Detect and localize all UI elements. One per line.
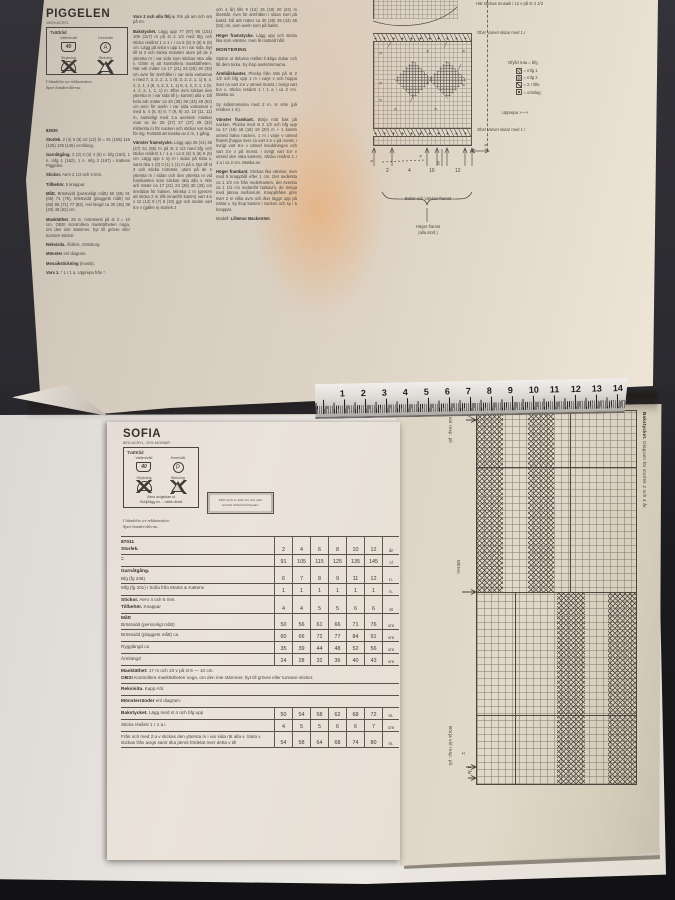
wash-label: Vattentvätt (136, 456, 153, 460)
size-value: 6 (346, 720, 364, 731)
paragraph-lead: Vänster framstycke. (133, 140, 173, 145)
wash-40-icon: 40 (136, 462, 151, 472)
pattern-band (608, 592, 637, 785)
rtills-symbol-icon (516, 82, 522, 88)
paragraph: Varv 2 och alla följ v. Rm på am och am … (133, 14, 212, 25)
x-mark: × (419, 155, 422, 161)
paragraph: Höger framstycke. Lägg upp och sticka li… (216, 33, 297, 44)
unit-cell: år (382, 537, 399, 554)
label-bold: Stickor. (121, 598, 138, 603)
ruler-number: 8 (487, 386, 492, 396)
legend-label: = mfg 1 (524, 68, 538, 73)
size-value: 84 (346, 630, 364, 641)
size-value: 71 (346, 614, 364, 630)
size-value: 4 (274, 596, 292, 613)
pattern-band (557, 592, 585, 785)
label-line: Bröstvidd (plaggets mått) ca (121, 632, 272, 638)
page-title: PIGGELEN (46, 8, 132, 20)
unit-cell: cm (382, 630, 399, 641)
copyright-line: särskilt tillstånd förbjudes. (222, 503, 260, 508)
paragraph: Ärmhålskanter. Plocka från räts på st 2 … (216, 71, 297, 98)
row-label: Bakstycket. Lägg med st 4 och bfg upp (121, 708, 274, 719)
paragraph: Garnåtgång. 2 (3) 3 (4) 4 (5) n. bfg (15… (46, 152, 130, 168)
size-value: 35 (274, 642, 292, 653)
label-line: Rekvisita. Kapp Ahl. (121, 686, 397, 693)
ruler-number: 3 (382, 388, 387, 398)
paragraph: Mått. Bröstvidd (personligt mått) 50 (56… (46, 191, 130, 213)
size-value: 135 (346, 555, 364, 566)
start-mark: 4 år (465, 766, 472, 775)
row-end-note: Obs! Varvet slutar med 1 r (477, 30, 526, 35)
row-label: Bröstvidd (plaggets mått) ca (121, 630, 274, 641)
legend-label: = mfg 2 (524, 75, 538, 80)
size-value: 125 (328, 555, 346, 566)
sofia-diagram-sheet: Bakstycket. Diagram för storlek 2 och 4 … (396, 404, 663, 866)
paragraph: Varv 1. * 1 r 1 a. Upprepa från *. (46, 270, 130, 275)
photo-scene: Bakstycket. Diagram för storlek 2 och 4 … (0, 0, 675, 900)
table-row: MåttBröstvidd (personligt mått)505661667… (121, 614, 399, 631)
legend-item: = mfg 1 (516, 68, 541, 74)
paragraph-lead: Stickor. (46, 172, 61, 177)
grid-line (476, 467, 637, 468)
ruler: 1234567891011121314 (315, 378, 632, 419)
paragraph-lead: Bakstycket. (133, 29, 156, 34)
paragraph-lead: Mönster (46, 251, 62, 256)
label-line: Sticka resårst 1 r 1 a i (121, 722, 272, 728)
row-label: MåttBröstvidd (personligt mått) (121, 614, 274, 630)
start-label: Börja vid resp. pil. (446, 726, 453, 800)
label-line: Tillbehör. Knappar (121, 604, 272, 611)
ruler-number: 12 (571, 384, 581, 394)
size-value: 6 (346, 596, 364, 613)
unit-cell: st (382, 596, 399, 613)
label-line: Stickor. Aero 4 och 5 mm. (121, 597, 272, 604)
cross-icon (170, 480, 187, 494)
label-line: Rygglängd ca (121, 644, 272, 650)
grid-line (476, 592, 637, 593)
size-value: 12 (364, 537, 382, 554)
size-value: 5 (310, 720, 328, 731)
table-row: =91105115125135145cl (121, 555, 399, 567)
x-mark: × (484, 144, 487, 150)
paragraph-lead: Rekvisita. (46, 242, 66, 247)
paragraph: och 4 år) tills 9 (12) 15 (18) 20 (22) m… (216, 7, 297, 29)
size-mark: 4 (408, 168, 411, 174)
label-line: Bröstvidd (personligt mått) (121, 622, 272, 628)
label-line: = (121, 556, 272, 563)
size-value: 1 (310, 584, 328, 595)
grid-line (515, 592, 516, 785)
grid-line (476, 715, 637, 716)
size-value: 36 (328, 654, 346, 665)
paragraph-lead: Mosaikstickning (46, 261, 79, 266)
size-value: 6 (274, 567, 292, 583)
wash-label: Vattentvätt (60, 36, 77, 40)
size-table: 87011Storlek.24681012år=9110511512513514… (121, 536, 399, 748)
x-motif: × (379, 82, 382, 88)
paragraph-lead: Lillemor Bäckström (231, 216, 270, 221)
section-heading: MONTERING (216, 47, 297, 53)
chart-title: Bakstycket. Diagram för storlek 2 och 4 … (640, 412, 647, 552)
instruction-column-2: Varv 2 och alla följ v. Rm på am och am … (133, 14, 212, 214)
slash-motif: ╱ (458, 66, 461, 72)
ruler-number: 9 (508, 385, 513, 395)
right-front-sizes: (alla storl.) (390, 230, 466, 235)
size-value: 10 (346, 537, 364, 554)
slash-motif: ╱ (388, 43, 391, 49)
size-value: 44 (310, 642, 328, 653)
unit-cell: cl (382, 555, 399, 566)
slash-motif: ╱ (410, 98, 413, 104)
x-motif: × (462, 50, 465, 56)
paragraph: Höger framkant. Stickas lika vänster, me… (216, 169, 297, 212)
size-value: 11 (346, 567, 364, 583)
row-label: Från och med 2:a v stickas den yttersta … (121, 732, 274, 746)
care-note-line: Skölj/lägg ev. – häfta direkt (127, 500, 195, 505)
legend-label: = 2 r tills. (524, 82, 541, 87)
size-value: 6 (310, 537, 328, 554)
label-line: Bfg (fg 238) (121, 576, 272, 582)
size-value: 24 (274, 654, 292, 665)
paragraph-lead: Storlek. (46, 137, 61, 142)
size-value: 105 (292, 555, 310, 566)
label-line: Storlek. (121, 546, 272, 553)
size-value: 54 (274, 732, 292, 746)
row-label: Mönsterränder enl diagram. (121, 696, 399, 707)
ruler-number: 13 (592, 383, 602, 393)
ruler-number: 7 (466, 386, 471, 396)
dryclean-label: Kemtvätt (98, 36, 112, 40)
wash-temp: 40 (141, 464, 147, 470)
label-line: Garnåtgång. (121, 568, 272, 575)
unit-cell: n. (382, 584, 399, 595)
size-value: 62 (328, 708, 346, 719)
x-motif: × (426, 50, 429, 56)
label-bold: Mått (121, 616, 131, 621)
ruler-number: 10 (529, 385, 539, 395)
care-symbols-box: Tvättråd Vattentvätt 40 Kemtvätt A Stryk… (46, 27, 128, 75)
x-mark: × (370, 160, 373, 166)
mosaic-note: Här stickas mosaik i 12 v på st 2 1/2 (476, 1, 543, 6)
size-value: 76 (364, 614, 382, 630)
size-value: 1 (364, 584, 382, 595)
size-mark: 2 (386, 168, 389, 174)
label-bold: OBS! (121, 676, 133, 681)
label-bold: 87011 (121, 540, 134, 545)
label-line: Bakstycket. Lägg med st 4 och bfg upp (121, 710, 272, 717)
row-label: Stickor. Aero 4 och 5 mm.Tillbehör. Knap… (121, 596, 274, 613)
omslag-symbol-icon (516, 89, 522, 95)
dryclean-label: Kemtvätt (171, 456, 185, 460)
size-mark: 10 (429, 168, 435, 174)
table-row: Stickor. Aero 4 och 5 mm.Tillbehör. Knap… (121, 596, 399, 614)
paragraph-lead: 83030 (46, 128, 58, 133)
ruler-number: 4 (403, 387, 408, 397)
unit-cell: m. (382, 708, 399, 719)
unit-cell: cm (382, 720, 399, 731)
label-line: 87011 (121, 539, 272, 546)
table-row: Bakstycket. Lägg med st 4 och bfg upp505… (121, 708, 399, 720)
size-value: 8 (328, 537, 346, 554)
reklamation-note: I händelse av reklamation: Spar banderol… (123, 518, 170, 531)
knitting-grid-top (373, 0, 458, 19)
chart-legend: = mfg 1= mfg 2= 2 r tills.= omslag (516, 68, 541, 96)
size-value: 1 (292, 584, 310, 595)
grid-line (570, 410, 571, 592)
label-line: Mfg (fg 201) i Sofia från Marks & Katten… (121, 585, 272, 591)
mfg2-symbol-icon (516, 75, 522, 81)
row-label: Rygglängd ca (121, 642, 274, 653)
size-value: 54 (292, 708, 310, 719)
size-value: 52 (346, 642, 364, 653)
size-value: 68 (328, 732, 346, 746)
label-bold: Mönsterränder (121, 699, 155, 704)
reklamation-line: Spar banderollerna. (123, 524, 170, 530)
label-bold: Tillbehör. (121, 605, 142, 610)
cross-icon (135, 480, 153, 493)
table-row: Från och med 2:a v stickas den yttersta … (121, 732, 399, 747)
size-mark: 12 (455, 168, 461, 174)
paragraph-lead: Ärmhålskanter. (216, 71, 246, 76)
size-value: 4 (292, 537, 310, 554)
x-motif: × (394, 108, 397, 114)
label-line: Masktäthet: 17 m och 23 v på st 5 — 10 c… (121, 668, 397, 675)
size-value: 66 (292, 630, 310, 641)
diamond-motif (394, 60, 432, 98)
size-value: 58 (292, 732, 310, 746)
wash-40-icon: 40 (61, 42, 76, 52)
paragraph-lead: Tillbehör. (46, 182, 65, 187)
size-value: 1 (346, 584, 364, 595)
piggelen-sheet: PIGGELEN 100% ACRYL Tvättråd Vattentvätt… (0, 0, 675, 418)
size-value: 77 (328, 630, 346, 641)
row-label: Rekvisita. Kapp Ahl. (121, 684, 399, 695)
dryclean-icon: A (100, 42, 111, 53)
instruction-column-3: och 4 år) tills 9 (12) 15 (18) 20 (22) m… (216, 7, 297, 225)
size-value: 1 (274, 584, 292, 595)
paragraph-lead: Garnåtgång. (46, 152, 71, 157)
x-motif: × (379, 52, 382, 58)
size-value: 5 (292, 720, 310, 731)
label-bold: Rekvisita. (121, 687, 143, 692)
table-row: Mönsterränder enl diagram. (121, 696, 399, 708)
fiber-content: 100% ACRYL (46, 21, 132, 25)
paragraph: Sy sidsömmarna med 2 m. st söm (på resår… (216, 102, 297, 113)
paragraph: Spänn ut delarna mellan fuktiga dukar oc… (216, 56, 297, 67)
size-value: 4 (292, 596, 310, 613)
legend-title: Ofylld ruta = bfg (508, 60, 538, 65)
sofia-banderoll: SOFIA 80% ACRYL, 20% MOHAIR Tvättråd Vat… (107, 422, 400, 860)
label-bold: Bakstycket. (121, 711, 148, 716)
ruler-number: 1 (340, 388, 345, 398)
paragraph: Modell: Lillemor Bäckström (216, 216, 297, 221)
row-label: Sticka resårst 1 r 1 a i (121, 720, 274, 731)
legend-item: = mfg 2 (516, 75, 541, 81)
reklamation-note: I händelse av reklamation: Spar banderol… (46, 79, 132, 92)
size-value: 7 (292, 567, 310, 583)
x-motif: × (462, 84, 465, 90)
chart-subtitle: Diagram för storlek 2 och 4 år. (642, 441, 647, 509)
mfg1-symbol-icon (516, 68, 522, 74)
no-iron-icon (137, 481, 152, 491)
legend-label: = omslag (524, 90, 541, 95)
x-motif: × (434, 108, 437, 114)
paragraph-lead: Masktäthet. (46, 217, 69, 222)
paragraph-lead: Höger framkant. (216, 169, 248, 174)
size-value: 64 (310, 732, 328, 746)
dryclean-letter: P (176, 465, 180, 471)
size-value: 43 (364, 654, 382, 665)
paragraph: Rekvisita. Åhléns, Göteborg. (46, 242, 130, 247)
size-value: 39 (292, 642, 310, 653)
size-value: 12 (364, 567, 382, 583)
paragraph-lead: Mått. (46, 191, 56, 196)
paragraph: Stickor. Aero 2 1/2 och 3 mm. (46, 172, 130, 177)
size-value: 68 (346, 708, 364, 719)
table-row: Sticka resårst 1 r 1 a i455667cm (121, 720, 399, 732)
row-label: 87011Storlek. (121, 537, 274, 554)
label-line: Mönsterränder enl diagram. (121, 698, 397, 705)
label-line: Ärmlängd (121, 656, 272, 662)
paragraph: Storlek. 2 (4) 6 (8) 10 (12) år = 91 (10… (46, 137, 130, 148)
size-value: 1 (328, 584, 346, 595)
size-mark: 6 (437, 161, 440, 167)
cross-icon (60, 60, 78, 73)
care-header: Tvättråd (50, 30, 124, 35)
size-value: 60 (274, 630, 292, 641)
size-value: 50 (274, 614, 292, 630)
label-bold: Garnåtgång. (121, 569, 149, 574)
care-header: Tvättråd (127, 450, 195, 455)
size-value: 80 (364, 732, 382, 746)
table-row: Mfg (fg 201) i Sofia från Marks & Katten… (121, 584, 399, 596)
size-value: 6 (328, 720, 346, 731)
chart-title-bold: Bakstycket. (642, 412, 647, 440)
copyright-box: Eftertryck av bild och text utan särskil… (207, 492, 274, 514)
label-line: Från och med 2:a v stickas den yttersta … (121, 734, 272, 746)
paragraph-lead: Höger framstycke. (216, 33, 254, 38)
ruler-number: 2 (361, 388, 366, 398)
size-value: 58 (310, 708, 328, 719)
size-value: 66 (328, 614, 346, 630)
start-mark: 2 (459, 752, 466, 755)
slash-motif: ╱ (444, 43, 447, 49)
label-line: OBS! Kontrollera masktätheten noga, om d… (121, 675, 397, 682)
unit-cell: cm (382, 654, 399, 665)
knitting-grid-bottom (373, 137, 472, 146)
wash-temp: 40 (66, 44, 72, 50)
reklamation-line: Spar banderollerna. (46, 85, 132, 91)
size-value: 74 (346, 732, 364, 746)
paragraph: 83030 (46, 128, 130, 133)
row-label: = (121, 555, 274, 566)
size-value: 91 (364, 630, 382, 641)
size-value: 50 (274, 708, 292, 719)
ruler-number: 14 (613, 383, 623, 393)
size-value: 72 (310, 630, 328, 641)
paragraph: Mönster enl diagram. (46, 251, 130, 256)
size-value: 32 (310, 654, 328, 665)
size-value: 115 (310, 555, 328, 566)
size-value: 6 (364, 596, 382, 613)
middle-label: Mitten (454, 560, 461, 596)
size-value: 56 (292, 614, 310, 630)
size-value: 145 (364, 555, 382, 566)
table-row: Rygglängd ca353944485256cm (121, 642, 399, 654)
bracket-label: Bakst och vänster framst (382, 196, 474, 201)
piggelen-chart: ×××××××××╱╱╱╱ Här stickas mosaik i 12 v … (330, 0, 570, 240)
label-bold: = (121, 557, 124, 562)
size-value: 61 (310, 614, 328, 630)
unit-cell: cm (382, 614, 399, 630)
size-value: 72 (364, 708, 382, 719)
x-motif: × (379, 99, 382, 105)
pattern-band (476, 410, 503, 592)
fiber-content: 80% ACRYL, 20% MOHAIR (123, 441, 393, 445)
ruler-number: 5 (424, 387, 429, 397)
size-value: 7 (364, 720, 382, 731)
paragraph: Vänster framkant. Börja mitt bak på nack… (216, 117, 297, 165)
care-symbols-box: Tvättråd Vattentvätt 40 Kemtvätt P Stryk… (123, 447, 199, 508)
paragraph: Masktäthet. 28 m. mönsterst på st 3 = 10… (46, 217, 130, 239)
label-bold: Storlek. (121, 547, 139, 552)
size-value: 28 (292, 654, 310, 665)
row-label: Garnåtgång.Bfg (fg 238) (121, 567, 274, 583)
eyelet-row (373, 33, 472, 42)
knitting-grid: ×××××××××╱╱╱╱ (373, 42, 472, 128)
page-title: SOFIA (123, 428, 393, 440)
dryclean-letter: A (103, 45, 107, 51)
size-value: 8 (310, 567, 328, 583)
right-front-label: Höger framst (390, 224, 466, 229)
eyelet-row (373, 128, 472, 137)
unit-cell: m. (382, 732, 399, 746)
size-value: 48 (328, 642, 346, 653)
size-value: 9 (328, 567, 346, 583)
paragraph-lead: Varv 1. (46, 270, 60, 275)
x-motif: × (426, 82, 429, 88)
repeat-note: Upprepa ×—× (502, 110, 528, 115)
table-row: 87011Storlek.24681012år (121, 537, 399, 555)
no-bleach-icon (171, 481, 185, 492)
legend-item: = omslag (516, 89, 541, 95)
care-note: Vänd avigsidan ut Skölj/lägg ev. – häfta… (127, 495, 195, 506)
cross-icon (97, 60, 114, 74)
size-value: 5 (310, 596, 328, 613)
table-row: Bröstvidd (plaggets mått) ca606672778491… (121, 630, 399, 642)
size-value: 56 (364, 642, 382, 653)
paragraph: Vänster framstycke. Lägg upp 35 (41) 45 … (133, 140, 212, 210)
unit-cell: cm (382, 642, 399, 653)
ruler-number: 6 (445, 386, 450, 396)
paragraph: Mosaikstickning (mosst). (46, 261, 130, 266)
label-bold: Masktäthet: (121, 669, 148, 674)
pattern-band (528, 410, 554, 592)
size-value: 4 (274, 720, 292, 731)
dryclean-icon: P (173, 462, 184, 473)
row-end-note: Obs! Varvet slutar med 1 r (477, 127, 526, 132)
unit-cell: n. (382, 567, 399, 583)
size-value: 40 (346, 654, 364, 665)
sofia-chart: Bakstycket. Diagram för storlek 2 och 4 … (440, 400, 665, 800)
table-row: Garnåtgång.Bfg (fg 238)67891112n. (121, 567, 399, 584)
instruction-column-1: 83030Storlek. 2 (4) 6 (8) 10 (12) år = 9… (46, 128, 130, 280)
paragraph-lead: Vänster framkant. (216, 117, 254, 122)
paragraph-lead: Varv 2 och alla följ v. (133, 14, 175, 19)
no-iron-icon (61, 61, 76, 71)
ruler-number: 11 (550, 384, 560, 394)
row-label: Mfg (fg 201) i Sofia från Marks & Katten… (121, 584, 274, 595)
